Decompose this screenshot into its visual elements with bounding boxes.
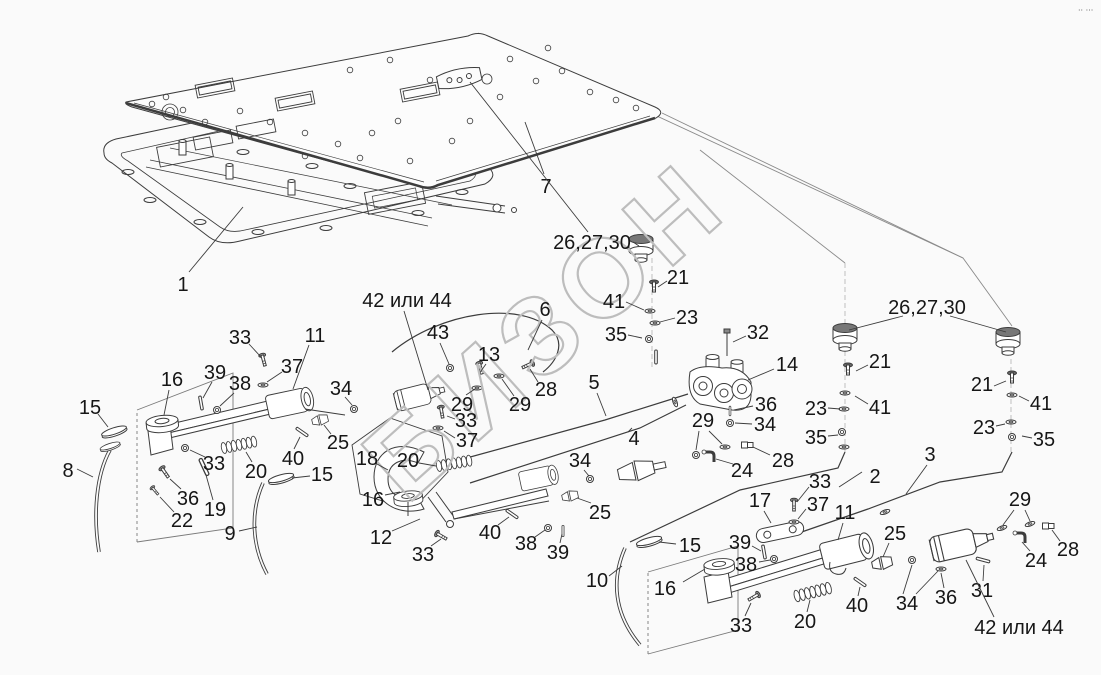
part-number-label: 11 <box>835 502 856 524</box>
part-number-label: 16 <box>161 369 183 391</box>
spring-20 <box>220 436 257 454</box>
disc-15 <box>101 424 128 440</box>
leader-line <box>206 475 213 500</box>
cylinder-eye <box>518 464 560 491</box>
part-number-label: 17 <box>749 490 771 512</box>
part-number-label: 37 <box>281 356 303 378</box>
spring-20 <box>793 582 833 602</box>
part-number-label: 42 или 44 <box>362 290 452 312</box>
leader-line <box>660 318 675 322</box>
leader-line <box>983 565 984 581</box>
part-number-label: 39 <box>204 362 226 384</box>
diagram-canvas: БИЗОН 1726,27,30214123353226,27,30642 ил… <box>0 0 1101 675</box>
coupler-25 <box>311 413 329 427</box>
part-number-label: 28 <box>535 379 557 401</box>
leader-line <box>1003 510 1014 525</box>
leader-line <box>759 560 770 562</box>
breather-cap <box>833 324 857 352</box>
roller-16 <box>703 557 735 576</box>
leader-line <box>77 469 93 477</box>
leader-line <box>996 424 1005 426</box>
part-number-label: 38 <box>735 554 757 576</box>
coupler-25 <box>871 555 893 572</box>
part-number-label: 20 <box>794 611 816 633</box>
leader-line <box>609 566 622 576</box>
part-number-label: 24 <box>1025 550 1047 572</box>
part-number-label: 38 <box>515 533 537 555</box>
leader-line <box>696 431 699 450</box>
cap-column-middle <box>839 363 853 449</box>
leader-line <box>597 393 606 416</box>
part-number-label: 24 <box>731 460 753 482</box>
leader-line <box>709 431 722 444</box>
leader-line <box>828 408 840 409</box>
leader-line <box>856 365 868 371</box>
leader-line <box>941 573 944 588</box>
part-number-label: 25 <box>589 502 611 524</box>
part-number-label: 15 <box>679 535 701 557</box>
leader-line <box>906 465 927 494</box>
part-number-label: 3 <box>924 444 935 466</box>
leader-line <box>753 447 770 455</box>
part-number-label: 10 <box>586 570 608 592</box>
part-number-label: 29 <box>509 394 531 416</box>
part-number-label: 34 <box>569 450 591 472</box>
part-number-label: 37 <box>456 430 478 452</box>
part-number-label: 18 <box>356 448 378 470</box>
part-number-label: 28 <box>1057 539 1079 561</box>
part-number-label: 36 <box>177 488 199 510</box>
part-number-label: 29 <box>692 410 714 432</box>
part-number-label: 23 <box>805 398 827 420</box>
part-number-label: 37 <box>807 494 829 516</box>
part-number-label: 5 <box>588 372 599 394</box>
part-number-label: 20 <box>397 450 419 472</box>
part-number-label: 21 <box>971 374 993 396</box>
part-number-label: 21 <box>667 267 689 289</box>
leader-line <box>828 435 838 436</box>
hose-9 <box>254 483 267 574</box>
hose-10 <box>617 548 640 645</box>
part-number-label: 38 <box>229 373 251 395</box>
leader-line <box>883 543 889 557</box>
plate-part-7 <box>126 34 661 188</box>
part-number-label: 33 <box>229 327 251 349</box>
part-number-label: 35 <box>605 324 627 346</box>
part-number-label: 20 <box>245 461 267 483</box>
part-number-label: 39 <box>729 532 751 554</box>
part-number-label: 35 <box>1033 429 1055 451</box>
part-number-label: 33 <box>455 410 477 432</box>
leader-line <box>392 519 420 531</box>
part-number-label: 33 <box>809 471 831 493</box>
part-number-label: 25 <box>884 523 906 545</box>
part-number-label: 1 <box>177 274 188 296</box>
part-number-label: 12 <box>370 527 392 549</box>
part-number-label: 41 <box>1030 393 1052 415</box>
leader-line <box>267 372 282 382</box>
part-number-label: 13 <box>478 344 500 366</box>
part-number-label: 40 <box>282 448 304 470</box>
leader-line <box>838 523 843 540</box>
part-number-label: 33 <box>203 453 225 475</box>
part-number-label: 42 или 44 <box>974 617 1064 639</box>
cylinder-11 <box>819 531 876 569</box>
leader-line <box>839 472 862 487</box>
part-number-label: 36 <box>935 587 957 609</box>
cap-column-right <box>1006 371 1017 441</box>
part-number-label: 26,27,30 <box>888 297 966 319</box>
leader-line <box>659 542 676 544</box>
cylinder-11 <box>265 386 316 419</box>
part-number-label: 15 <box>79 397 101 419</box>
part-number-label: 32 <box>747 322 769 344</box>
part-number-label: 33 <box>730 615 752 637</box>
part-number-label: 34 <box>896 593 918 615</box>
part-number-label: 33 <box>412 544 434 566</box>
part-number-label: 40 <box>479 522 501 544</box>
part-number-label: 11 <box>305 325 326 347</box>
part-number-label: 2 <box>869 466 880 488</box>
part-number-label: 9 <box>224 523 235 545</box>
part-number-label: 29 <box>1009 489 1031 511</box>
part-number-label: 41 <box>603 291 625 313</box>
part-number-label: 41 <box>869 397 891 419</box>
leader-line <box>164 390 169 415</box>
part-number-label: 35 <box>805 427 827 449</box>
brake-chamber-42-44 <box>929 524 996 564</box>
part-number-label: 8 <box>62 460 73 482</box>
part-number-label: 22 <box>171 510 193 532</box>
large-coupler <box>616 455 667 485</box>
part-number-label: 19 <box>204 499 226 521</box>
part-number-label: 43 <box>427 322 449 344</box>
leader-line <box>752 546 761 551</box>
leader-line <box>994 381 1006 386</box>
leader-line <box>1022 436 1032 438</box>
part-number-label: 14 <box>776 354 798 376</box>
coupler-25 <box>561 489 579 502</box>
leader-line <box>189 207 243 272</box>
part-number-label: 39 <box>547 542 569 564</box>
part-number-label: 15 <box>311 464 333 486</box>
part-number-label: 34 <box>754 414 776 436</box>
part-number-label: 40 <box>846 595 868 617</box>
leader-line <box>683 569 705 582</box>
part-number-label: 36 <box>755 394 777 416</box>
leader-line <box>1025 510 1030 521</box>
part-number-label: 6 <box>539 299 550 321</box>
part-number-label: 16 <box>654 578 676 600</box>
corner-mark: ·· ··· <box>1078 6 1093 15</box>
part-number-label: 28 <box>772 450 794 472</box>
part-number-label: 31 <box>971 580 993 602</box>
part-number-label: 16 <box>362 489 384 511</box>
part-number-label: 34 <box>330 378 352 400</box>
leader-line <box>748 369 774 380</box>
leader-line <box>292 476 310 478</box>
leader-line <box>733 336 746 342</box>
part-number-label: 23 <box>676 307 698 329</box>
leader-line <box>855 396 868 404</box>
disc-15 <box>268 472 295 487</box>
leader-line <box>735 423 752 424</box>
part-number-label: 21 <box>869 351 891 373</box>
hose-8 <box>96 450 110 552</box>
breather-cap <box>996 328 1020 356</box>
part-number-label: 25 <box>327 432 349 454</box>
leader-line <box>764 511 771 523</box>
leader-line <box>1019 396 1029 401</box>
leader-line <box>903 565 912 594</box>
part-number-label: 4 <box>628 428 639 450</box>
leader-line <box>798 509 806 519</box>
part-number-label: 26,27,30 <box>553 232 631 254</box>
part-number-label: 23 <box>973 417 995 439</box>
diagram-page: БИЗОН 1726,27,30214123353226,27,30642 ил… <box>0 0 1101 675</box>
